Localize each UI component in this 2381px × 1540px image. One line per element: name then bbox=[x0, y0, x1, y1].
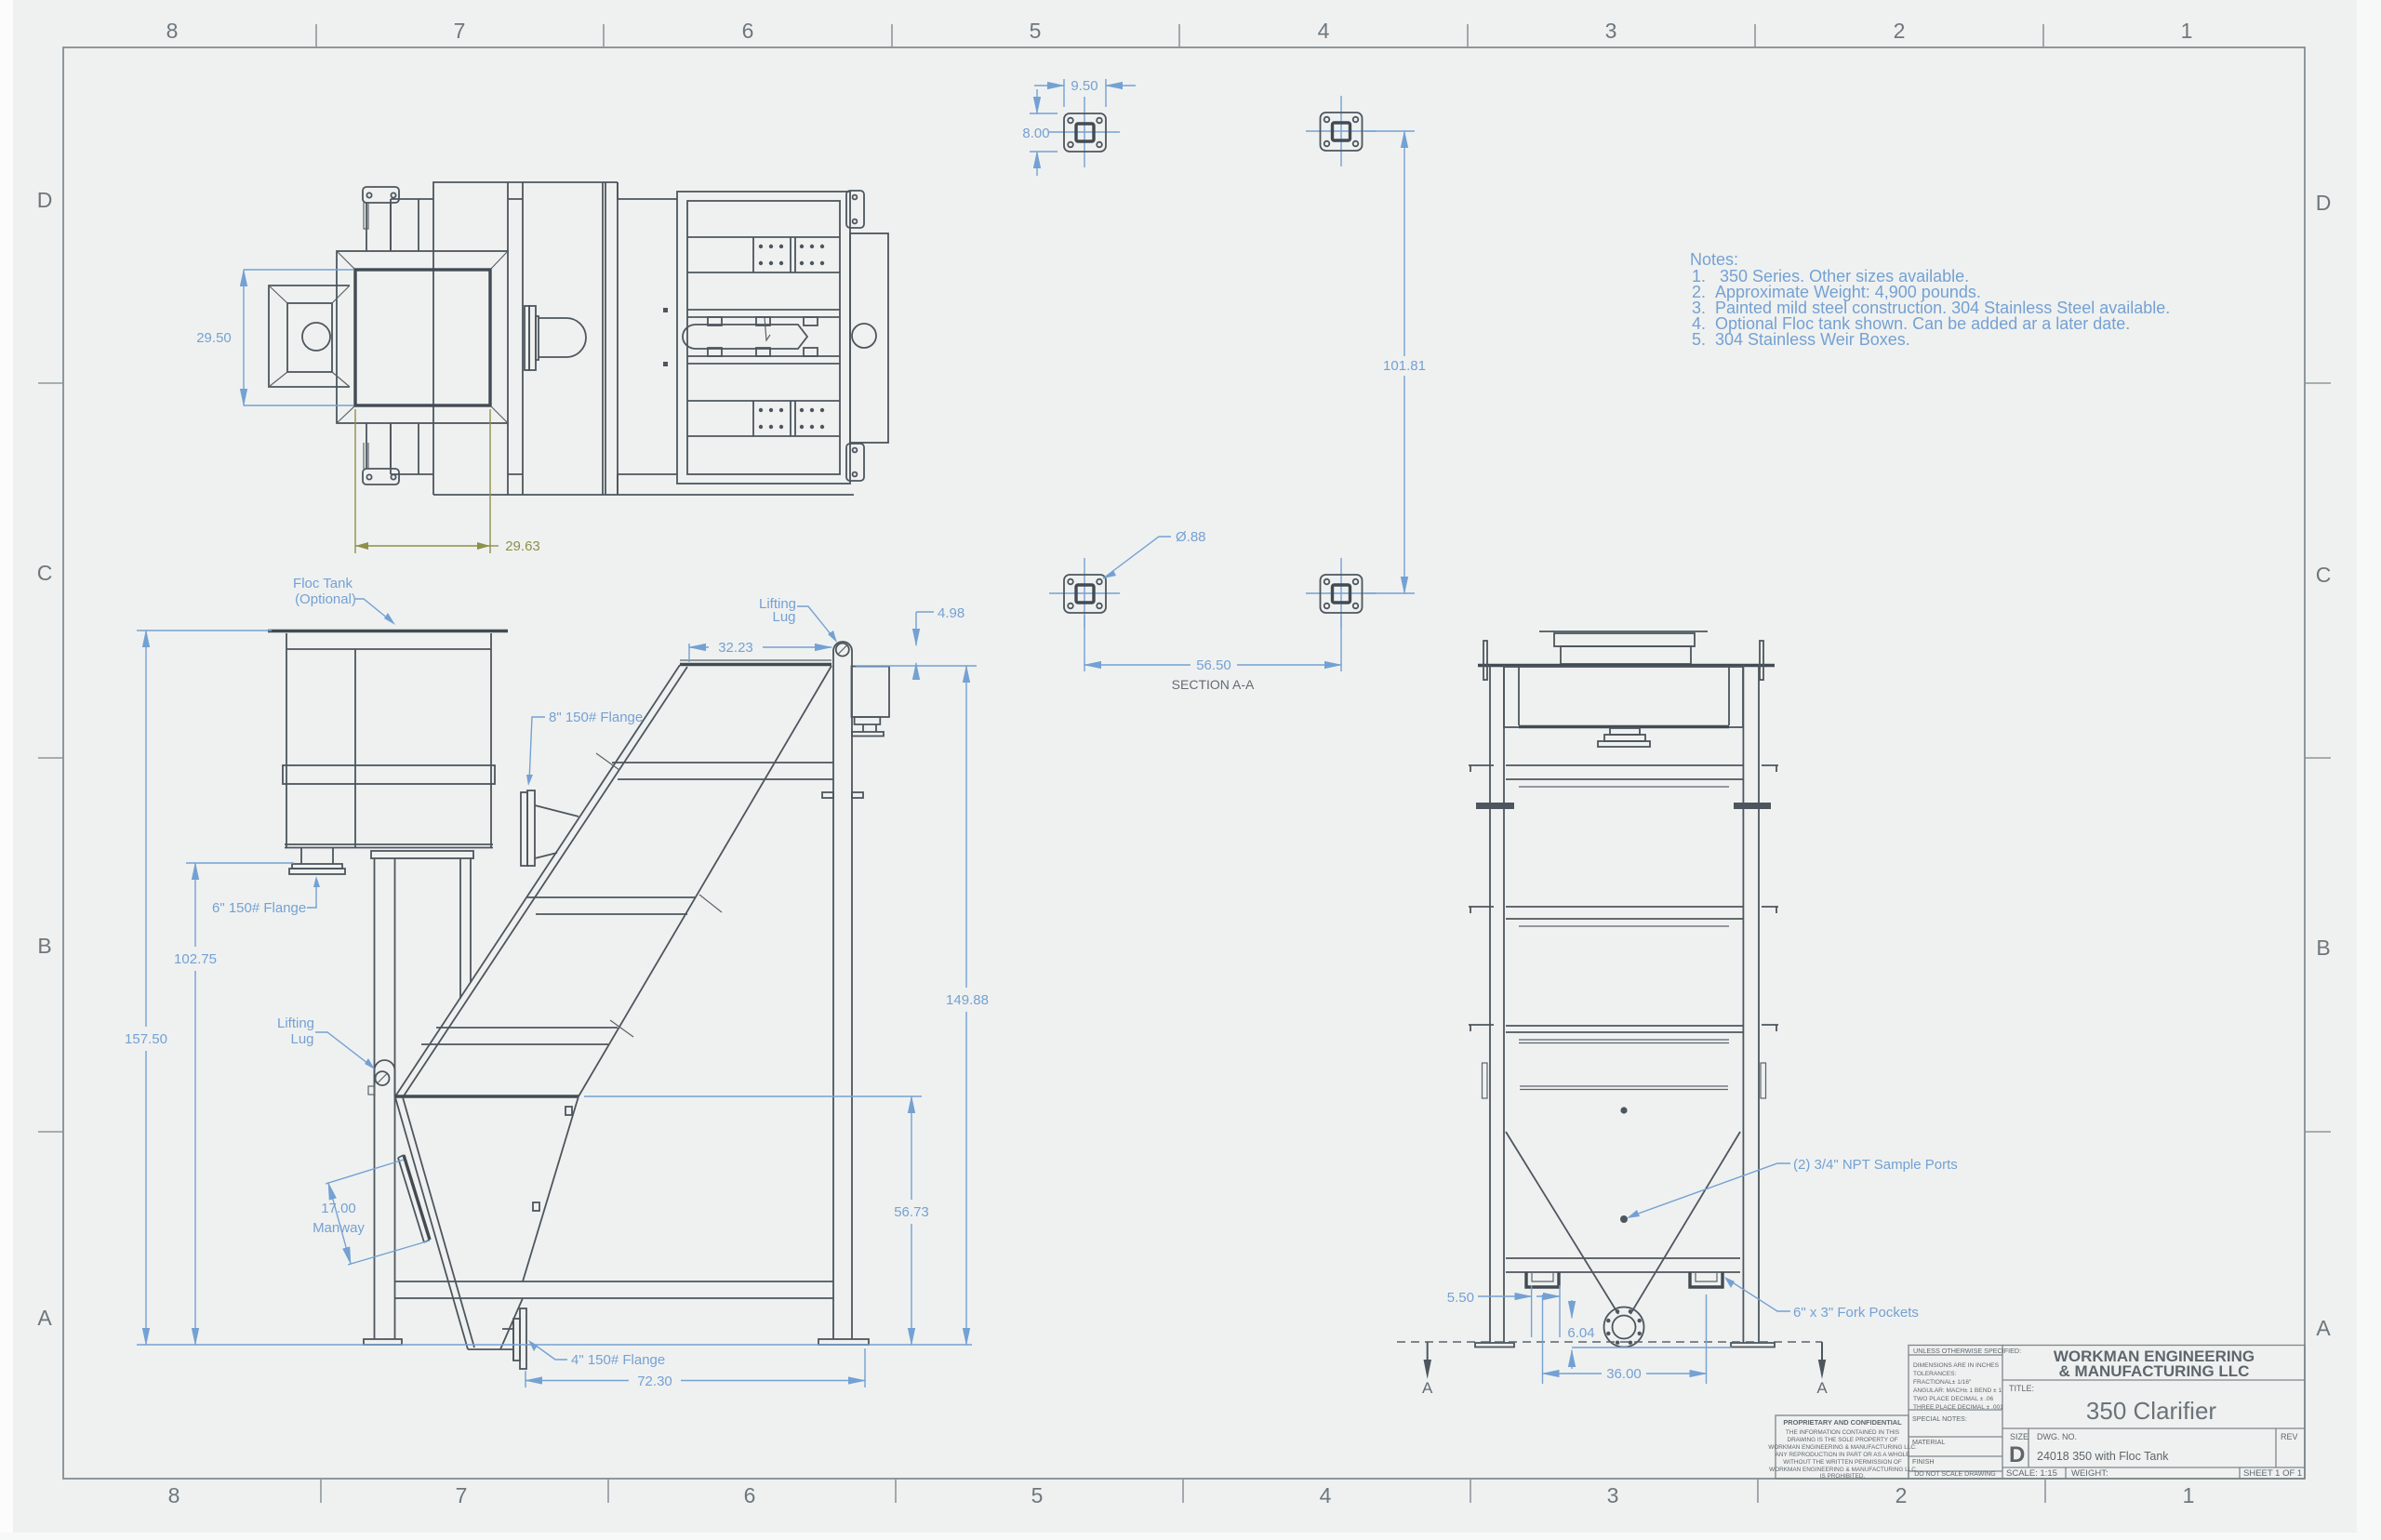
svg-text:UNLESS OTHERWISE SPECIFIED:: UNLESS OTHERWISE SPECIFIED: bbox=[1913, 1347, 2021, 1355]
svg-text:36.00: 36.00 bbox=[1606, 1366, 1642, 1382]
svg-text:7: 7 bbox=[456, 1483, 468, 1507]
svg-text:(Optional): (Optional) bbox=[295, 591, 356, 607]
svg-text:8: 8 bbox=[166, 19, 179, 43]
svg-text:IS PROHIBITED.: IS PROHIBITED. bbox=[1820, 1473, 1866, 1480]
svg-text:2: 2 bbox=[1895, 1483, 1908, 1507]
svg-text:Manway: Manway bbox=[313, 1220, 365, 1236]
svg-text:Lifting: Lifting bbox=[277, 1016, 314, 1031]
svg-text:Lug: Lug bbox=[772, 609, 795, 625]
svg-text:REV: REV bbox=[2281, 1432, 2298, 1441]
svg-text:4" 150# Flange: 4" 150# Flange bbox=[571, 1352, 665, 1368]
svg-text:32.23: 32.23 bbox=[718, 640, 753, 656]
svg-text:WORKMAN ENGINEERING & MANUFACT: WORKMAN ENGINEERING & MANUFACTURING LLC. bbox=[1768, 1444, 1917, 1451]
svg-text:MATERIAL: MATERIAL bbox=[1912, 1438, 1945, 1446]
svg-text:5: 5 bbox=[1031, 1483, 1044, 1507]
svg-text:56.50: 56.50 bbox=[1196, 657, 1231, 673]
svg-text:WORKMAN ENGINEERING & MANUFACT: WORKMAN ENGINEERING & MANUFACTURING LLC bbox=[1769, 1467, 1916, 1473]
svg-text:6" x 3" Fork Pockets: 6" x 3" Fork Pockets bbox=[1793, 1305, 1919, 1321]
svg-text:B: B bbox=[2316, 936, 2330, 960]
svg-text:1: 1 bbox=[2183, 1483, 2195, 1507]
svg-text:WEIGHT:: WEIGHT: bbox=[2071, 1468, 2108, 1479]
svg-text:6: 6 bbox=[744, 1483, 756, 1507]
svg-text:5.50: 5.50 bbox=[1447, 1290, 1474, 1306]
svg-text:4: 4 bbox=[1320, 1483, 1332, 1507]
svg-text:DWG. NO.: DWG. NO. bbox=[2037, 1432, 2077, 1441]
svg-text:DO NOT SCALE DRAWING: DO NOT SCALE DRAWING bbox=[1914, 1471, 1996, 1478]
svg-text:TITLE:: TITLE: bbox=[2009, 1384, 2034, 1393]
svg-text:8: 8 bbox=[168, 1483, 180, 1507]
svg-text:THREE PLACE DECIMAL ± .001: THREE PLACE DECIMAL ± .001 bbox=[1913, 1404, 2003, 1411]
svg-text:C: C bbox=[37, 561, 53, 585]
svg-text:A: A bbox=[37, 1306, 52, 1330]
svg-text:DRAWING IS THE SOLE PROPERTY O: DRAWING IS THE SOLE PROPERTY OF bbox=[1787, 1437, 1897, 1443]
svg-text:SIZE: SIZE bbox=[2010, 1432, 2029, 1441]
svg-text:102.75: 102.75 bbox=[174, 951, 217, 967]
svg-text:Ø.88: Ø.88 bbox=[1176, 529, 1206, 545]
svg-text:5: 5 bbox=[1030, 19, 1042, 43]
svg-text:A: A bbox=[2316, 1316, 2331, 1340]
svg-text:SCALE: 1:15: SCALE: 1:15 bbox=[2006, 1468, 2057, 1479]
svg-text:& MANUFACTURING LLC: & MANUFACTURING LLC bbox=[2059, 1362, 2250, 1380]
svg-text:101.81: 101.81 bbox=[1383, 358, 1426, 374]
svg-text:9.50: 9.50 bbox=[1071, 78, 1097, 94]
svg-text:4.98: 4.98 bbox=[938, 605, 964, 621]
svg-text:29.50: 29.50 bbox=[196, 330, 232, 346]
svg-text:350 Clarifier: 350 Clarifier bbox=[2086, 1397, 2217, 1425]
svg-text:ANY REPRODUCTION IN PART OR AS: ANY REPRODUCTION IN PART OR AS A WHOLE bbox=[1776, 1452, 1910, 1458]
svg-text:WITHOUT THE WRITTEN PERMISSION: WITHOUT THE WRITTEN PERMISSION OF bbox=[1783, 1459, 1902, 1466]
svg-text:TWO PLACE DECIMAL ± .06: TWO PLACE DECIMAL ± .06 bbox=[1913, 1396, 1994, 1402]
svg-text:56.73: 56.73 bbox=[894, 1204, 929, 1220]
svg-text:TOLERANCES:: TOLERANCES: bbox=[1913, 1371, 1957, 1377]
svg-text:157.50: 157.50 bbox=[125, 1031, 167, 1047]
svg-text:DIMENSIONS ARE IN INCHES: DIMENSIONS ARE IN INCHES bbox=[1913, 1362, 2000, 1369]
svg-text:PROPRIETARY AND CONFIDENTIAL: PROPRIETARY AND CONFIDENTIAL bbox=[1783, 1418, 1902, 1427]
svg-text:5. 304 Stainless Weir Boxes.: 5. 304 Stainless Weir Boxes. bbox=[1692, 330, 1910, 349]
svg-text:3: 3 bbox=[1607, 1483, 1619, 1507]
svg-text:D: D bbox=[2316, 191, 2332, 215]
svg-text:Lug: Lug bbox=[290, 1031, 313, 1047]
svg-text:7: 7 bbox=[454, 19, 466, 43]
svg-text:8" 150# Flange: 8" 150# Flange bbox=[549, 710, 643, 725]
svg-text:D: D bbox=[2009, 1442, 2025, 1467]
svg-text:72.30: 72.30 bbox=[637, 1374, 672, 1389]
svg-text:24018 350 with Floc Tank: 24018 350 with Floc Tank bbox=[2037, 1450, 2169, 1463]
svg-text:Floc Tank: Floc Tank bbox=[293, 576, 352, 591]
svg-text:6" 150# Flange: 6" 150# Flange bbox=[212, 900, 306, 916]
svg-text:B: B bbox=[37, 934, 51, 958]
svg-text:A: A bbox=[1422, 1379, 1433, 1397]
svg-text:ANGULAR: MACH± 1 BEND ± 1: ANGULAR: MACH± 1 BEND ± 1 bbox=[1913, 1387, 2002, 1394]
svg-text:FINISH: FINISH bbox=[1912, 1457, 1935, 1466]
svg-text:SECTION A-A: SECTION A-A bbox=[1172, 677, 1255, 692]
svg-text:A: A bbox=[1816, 1379, 1828, 1397]
svg-text:THE INFORMATION CONTAINED IN T: THE INFORMATION CONTAINED IN THIS bbox=[1786, 1429, 1899, 1436]
svg-text:(2) 3/4" NPT Sample Ports: (2) 3/4" NPT Sample Ports bbox=[1793, 1157, 1958, 1173]
svg-text:6: 6 bbox=[742, 19, 754, 43]
svg-text:SHEET 1 OF 1: SHEET 1 OF 1 bbox=[2243, 1468, 2302, 1479]
svg-text:6.04: 6.04 bbox=[1567, 1325, 1594, 1341]
svg-text:8.00: 8.00 bbox=[1022, 126, 1049, 141]
svg-text:2: 2 bbox=[1894, 19, 1906, 43]
svg-text:3: 3 bbox=[1605, 19, 1617, 43]
svg-text:FRACTIONAL± 1/16": FRACTIONAL± 1/16" bbox=[1913, 1379, 1972, 1386]
svg-text:149.88: 149.88 bbox=[946, 992, 989, 1008]
svg-text:SPECIAL NOTES:: SPECIAL NOTES: bbox=[1912, 1414, 1967, 1423]
svg-text:C: C bbox=[2316, 563, 2332, 587]
svg-text:4: 4 bbox=[1318, 19, 1330, 43]
svg-text:29.63: 29.63 bbox=[505, 538, 540, 554]
svg-text:D: D bbox=[37, 188, 53, 212]
svg-text:1: 1 bbox=[2181, 19, 2193, 43]
svg-text:Notes:: Notes: bbox=[1690, 250, 1738, 269]
svg-text:17.00: 17.00 bbox=[321, 1201, 356, 1216]
